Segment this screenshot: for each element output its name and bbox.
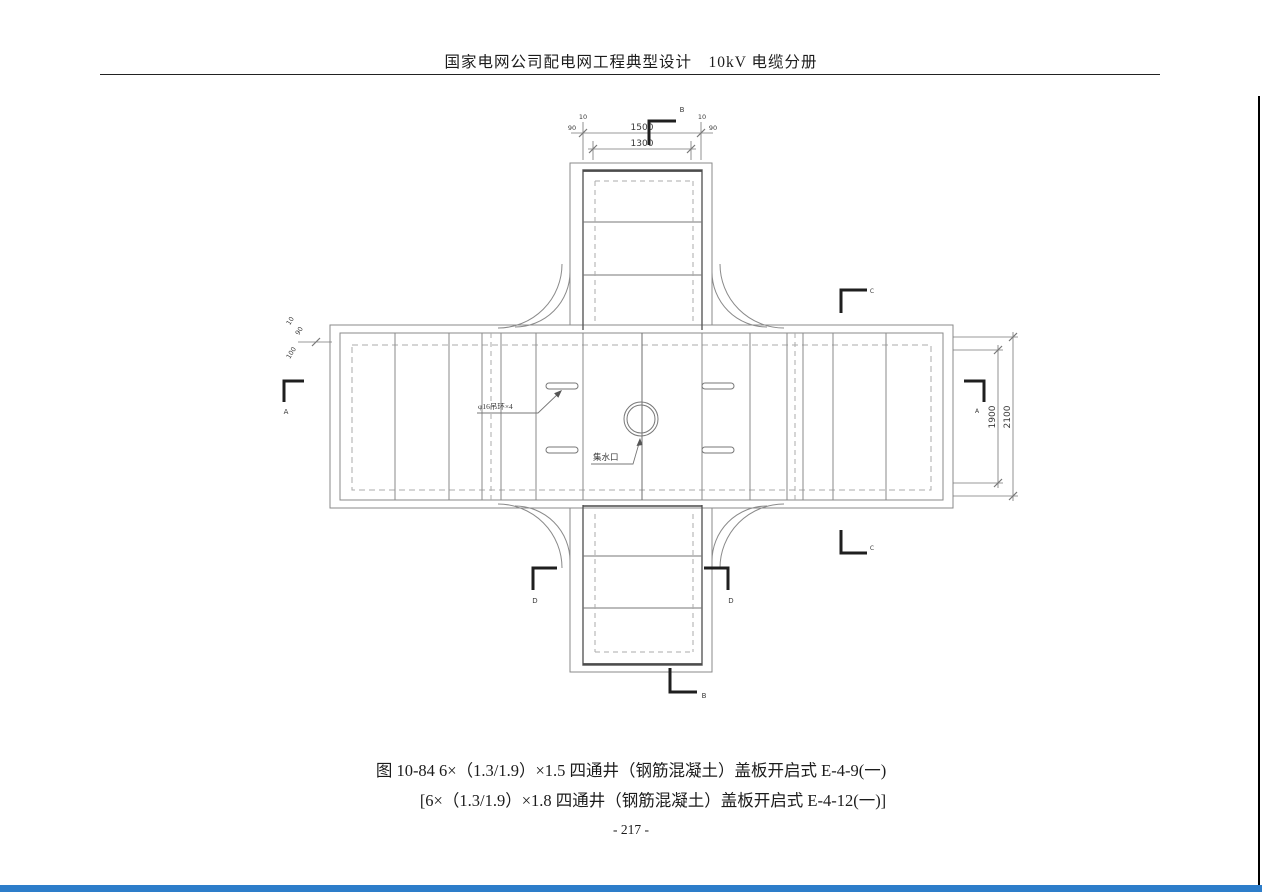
lifting-ring-slot <box>546 447 578 453</box>
junction-fillets <box>498 264 784 568</box>
dim-2100: 2100 <box>1003 405 1013 428</box>
annotation-lifting-rings: φ16吊环×4 <box>477 390 562 413</box>
page-right-border <box>1258 96 1260 885</box>
document-page: 国家电网公司配电网工程典型设计 10kV 电缆分册 <box>0 0 1262 892</box>
section-label-a-left: A <box>284 408 289 416</box>
dimension-right-labels: 1900 2100 <box>988 405 1013 428</box>
figure-caption-line2: [6×（1.3/1.9）×1.8 四通井（钢筋混凝土）盖板开启式 E-4-12(… <box>22 786 1262 816</box>
lifting-ring-slot <box>702 383 734 389</box>
dim-1900: 1900 <box>988 405 998 428</box>
bottom-branch <box>570 505 712 672</box>
figure-caption: 图 10-84 6×（1.3/1.9）×1.5 四通井（钢筋混凝土）盖板开启式 … <box>0 756 1262 816</box>
cover-plate-joints <box>395 333 886 500</box>
main-body <box>330 325 953 508</box>
section-mark-c-top <box>841 290 867 313</box>
water-inlet-label: 集水口 <box>593 452 619 462</box>
annotation-water-inlet: 集水口 <box>591 438 643 464</box>
dim-100-leftside: 100 <box>285 346 298 361</box>
dim-90-left: 90 <box>568 124 576 132</box>
dim-90-right: 90 <box>709 124 717 132</box>
section-label-b-top: B <box>680 106 685 114</box>
lifting-rings-label: φ16吊环×4 <box>478 402 513 411</box>
dim-90-leftside: 90 <box>294 325 305 336</box>
top-branch-dashed <box>595 181 693 322</box>
dim-10-leftside: 10 <box>285 315 296 326</box>
bottom-branch-inner <box>583 505 702 665</box>
section-mark-c-bottom <box>841 530 867 553</box>
section-label-d-left: D <box>532 597 537 605</box>
section-mark-labels: A A B B C C D D <box>284 106 980 700</box>
section-mark-a-left <box>284 381 304 402</box>
lifting-ring-slot <box>546 383 578 389</box>
top-branch <box>570 163 712 330</box>
dimension-left: 10 90 100 <box>285 315 332 360</box>
section-label-c-bottom: C <box>870 545 874 552</box>
section-label-b-bottom: B <box>702 692 707 700</box>
page-number: - 217 - <box>0 822 1262 838</box>
section-mark-d-right <box>704 568 728 590</box>
bottom-accent-bar <box>0 885 1262 892</box>
section-mark-d-left <box>533 568 557 590</box>
figure-caption-line1: 图 10-84 6×（1.3/1.9）×1.5 四通井（钢筋混凝土）盖板开启式 … <box>0 756 1262 786</box>
top-branch-inner <box>583 170 702 330</box>
section-mark-a-right <box>964 381 984 402</box>
lifting-ring-slot <box>702 447 734 453</box>
bottom-branch-dashed <box>595 514 693 652</box>
dim-10-right: 10 <box>698 113 706 121</box>
bottom-branch-outer <box>570 508 712 672</box>
section-label-a-right: A <box>975 408 980 415</box>
top-branch-outer <box>570 163 712 325</box>
water-inlet-opening <box>624 402 658 436</box>
section-label-d-right: D <box>728 597 733 605</box>
section-label-c-top: C <box>870 288 874 295</box>
dim-10-left: 10 <box>579 113 587 121</box>
dimension-top-labels: 1500 1300 10 90 10 90 <box>568 113 717 149</box>
